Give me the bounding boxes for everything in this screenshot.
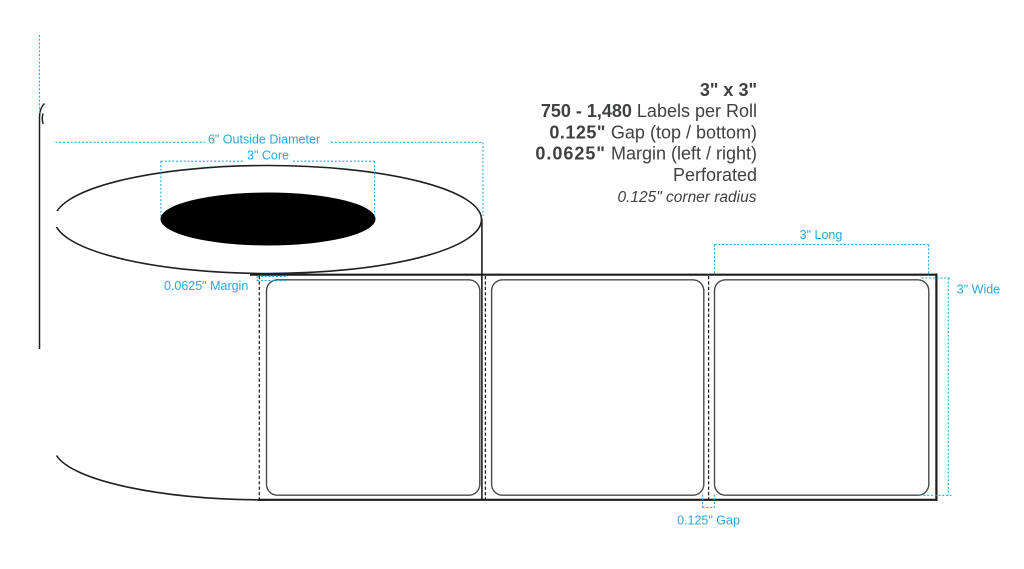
svg-text:750 - 1,480 Labels per Roll: 750 - 1,480 Labels per Roll <box>541 101 757 121</box>
svg-text:6" Outside Diameter: 6" Outside Diameter <box>208 133 320 147</box>
svg-text:3" Core: 3" Core <box>247 149 289 163</box>
svg-text:3" Wide: 3" Wide <box>957 282 1000 296</box>
svg-text:0.125" corner radius: 0.125" corner radius <box>617 189 756 206</box>
svg-text:3" x 3": 3" x 3" <box>700 80 757 100</box>
svg-text:0.125" Gap: 0.125" Gap <box>677 513 740 527</box>
svg-text:0.0625" Margin (left / right): 0.0625" Margin (left / right) <box>535 144 757 164</box>
svg-text:0.125" Gap (top / bottom): 0.125" Gap (top / bottom) <box>549 122 757 142</box>
svg-text:0.0625" Margin: 0.0625" Margin <box>164 279 248 293</box>
svg-text:Perforated: Perforated <box>673 165 757 185</box>
svg-text:3" Long: 3" Long <box>800 228 843 242</box>
